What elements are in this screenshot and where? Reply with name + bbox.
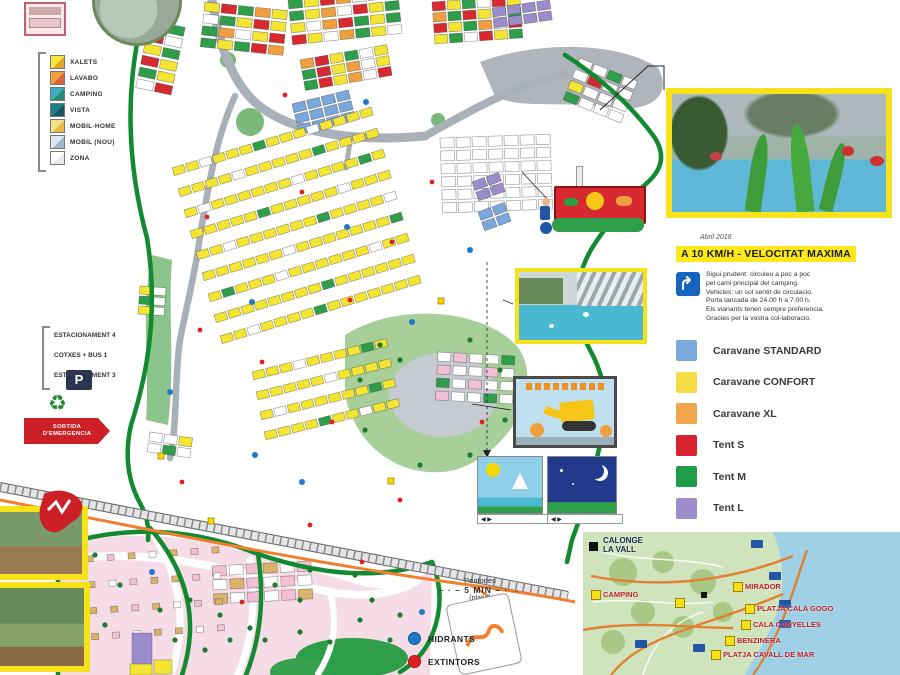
pitch-type-row: Tent M bbox=[676, 466, 821, 487]
night-schedule-sign bbox=[547, 456, 617, 514]
inset-label-cala-gogo: PLATJA CALA GOGO bbox=[757, 604, 833, 613]
legend-label: MOBIL-HOME bbox=[70, 123, 116, 130]
legend-label: MOBIL (NOU) bbox=[70, 139, 115, 146]
pitch-type-label: Tent M bbox=[713, 471, 746, 483]
day-schedule-sign bbox=[477, 456, 543, 514]
info-line: pel cami principal del camping. bbox=[706, 280, 892, 289]
left-legend-item: LAVABO bbox=[50, 70, 116, 86]
inset-marker bbox=[591, 590, 601, 600]
footpath-top: Peatones bbox=[418, 576, 542, 585]
emergency-exit-line1: SORTIDA bbox=[53, 424, 81, 431]
turn-arrow-icon bbox=[676, 272, 700, 296]
area-inset-map: CALONGE LA VALL CAMPING MIRADOR PLATJA C… bbox=[583, 532, 900, 675]
inset-label-camping: CAMPING bbox=[603, 590, 638, 599]
extinguishers-label: EXTINTORS bbox=[428, 657, 480, 667]
parking-bracket bbox=[42, 326, 50, 390]
legend-swatch bbox=[50, 151, 65, 165]
parking-line: COTXES + BUS 1 bbox=[54, 346, 116, 366]
inset-label-mirador: MIRADOR bbox=[745, 582, 781, 591]
info-line: Vehicles: un sol sentit de circulacio. bbox=[706, 289, 892, 298]
pitch-type-label: Caravane CONFORT bbox=[713, 376, 815, 388]
legend-bracket bbox=[38, 52, 46, 172]
legend-swatch bbox=[50, 135, 65, 149]
map-sign-thumbnail bbox=[24, 2, 66, 36]
parking-line: ESTACIONAMENT 4 bbox=[54, 326, 116, 346]
extinguishers-legend-row: EXTINTORS bbox=[408, 655, 480, 668]
hydrant-dot-icon bbox=[408, 632, 421, 645]
legend-swatch bbox=[50, 55, 65, 69]
legend-label: CAMPING bbox=[70, 91, 103, 98]
day-sign-arrows: ◀ ▶ bbox=[477, 514, 549, 524]
pitch-type-swatch bbox=[676, 340, 697, 361]
pitch-type-swatch bbox=[676, 372, 697, 393]
inset-label-benzinera: BENZINERA bbox=[737, 636, 781, 645]
inset-marker bbox=[745, 604, 755, 614]
dot-legend: HIDRANTS EXTINTORS bbox=[408, 632, 480, 675]
pitch-type-swatch bbox=[676, 435, 697, 456]
speed-headline: A 10 KM/H - VELOCITAT MAXIMA bbox=[676, 246, 856, 262]
left-legend-item: CAMPING bbox=[50, 86, 116, 102]
date-note: Abril 2018 bbox=[700, 234, 732, 241]
pool-photo bbox=[666, 88, 892, 218]
left-legend-item: VISTA bbox=[50, 102, 116, 118]
left-legend-item: ZONA bbox=[50, 150, 116, 166]
night-sign-arrows: ◀ ▶ bbox=[547, 514, 623, 524]
pitch-type-label: Tent S bbox=[713, 439, 744, 451]
left-legend-item: MOBIL-HOME bbox=[50, 118, 116, 134]
play-excavator-photo bbox=[513, 376, 617, 448]
parking-icon: P bbox=[66, 370, 92, 390]
pitch-type-swatch bbox=[676, 466, 697, 487]
legend-label: LAVABO bbox=[70, 75, 98, 82]
pitch-type-label: Caravane XL bbox=[713, 408, 777, 420]
info-line: Gracies per la vostra col-laboracio. bbox=[706, 315, 892, 324]
pitch-type-row: Tent S bbox=[676, 435, 821, 456]
green-patch bbox=[236, 108, 264, 136]
legend-label: XALETS bbox=[70, 59, 97, 66]
inset-marker bbox=[711, 650, 721, 660]
pitch-type-row: Caravane CONFORT bbox=[676, 372, 821, 393]
pitch-type-label: Tent L bbox=[713, 502, 744, 514]
info-text: Sigui prudent: circuleu a poc a pocpel c… bbox=[706, 271, 892, 324]
pitch-type-row: Caravane STANDARD bbox=[676, 340, 821, 361]
pitch-type-label: Caravane STANDARD bbox=[713, 345, 821, 357]
left-legend: XALETSLAVABOCAMPINGVISTAMOBIL-HOMEMOBIL … bbox=[50, 54, 116, 166]
inset-marker bbox=[733, 582, 743, 592]
emergency-exit-line2: D'EMERGENCIA bbox=[43, 431, 91, 438]
hydrants-legend-row: HIDRANTS bbox=[408, 632, 480, 645]
inset-marker bbox=[725, 636, 735, 646]
waterslide-photo bbox=[515, 268, 647, 344]
pitch-type-swatch bbox=[676, 403, 697, 424]
pitch-type-row: Tent L bbox=[676, 498, 821, 519]
left-legend-item: MOBIL (NOU) bbox=[50, 134, 116, 150]
legend-swatch bbox=[50, 87, 65, 101]
legend-label: VISTA bbox=[70, 107, 90, 114]
extinguisher-dot-icon bbox=[408, 655, 421, 668]
hydrants-label: HIDRANTS bbox=[428, 634, 475, 644]
footpath-mid: – · – 5 MIN – · → bbox=[418, 585, 542, 595]
inset-label-cavall: PLATJA CAVALL DE MAR bbox=[723, 650, 814, 659]
pitch-type-row: Caravane XL bbox=[676, 403, 821, 424]
legend-swatch bbox=[50, 103, 65, 117]
nature-photo-2 bbox=[0, 582, 90, 672]
inset-town-label: CALONGE LA VALL bbox=[603, 536, 643, 554]
info-line: Sigui prudent: circuleu a poc a poc bbox=[706, 271, 892, 280]
inset-marker bbox=[675, 598, 685, 608]
pitch-type-legend: Caravane STANDARDCaravane CONFORTCaravan… bbox=[676, 340, 821, 529]
playground-cartoon bbox=[548, 180, 648, 246]
inset-marker bbox=[741, 620, 751, 630]
inset-label-canyelles: CALA CANYELLES bbox=[753, 620, 821, 629]
pitch-type-swatch bbox=[676, 498, 697, 519]
info-line: Els vianants tenen sempre preferencia. bbox=[706, 306, 892, 315]
info-line: Porta tancada de 24.00 h a 7.00 h. bbox=[706, 297, 892, 306]
left-legend-item: XALETS bbox=[50, 54, 116, 70]
legend-label: ZONA bbox=[70, 155, 90, 162]
campsite-map-page: XALETSLAVABOCAMPINGVISTAMOBIL-HOMEMOBIL … bbox=[0, 0, 900, 675]
brand-logo bbox=[36, 488, 86, 542]
legend-swatch bbox=[50, 119, 65, 133]
recycle-icon: ♻ bbox=[48, 392, 67, 416]
legend-swatch bbox=[50, 71, 65, 85]
emergency-exit-sign: SORTIDA D'EMERGENCIA bbox=[24, 418, 110, 444]
